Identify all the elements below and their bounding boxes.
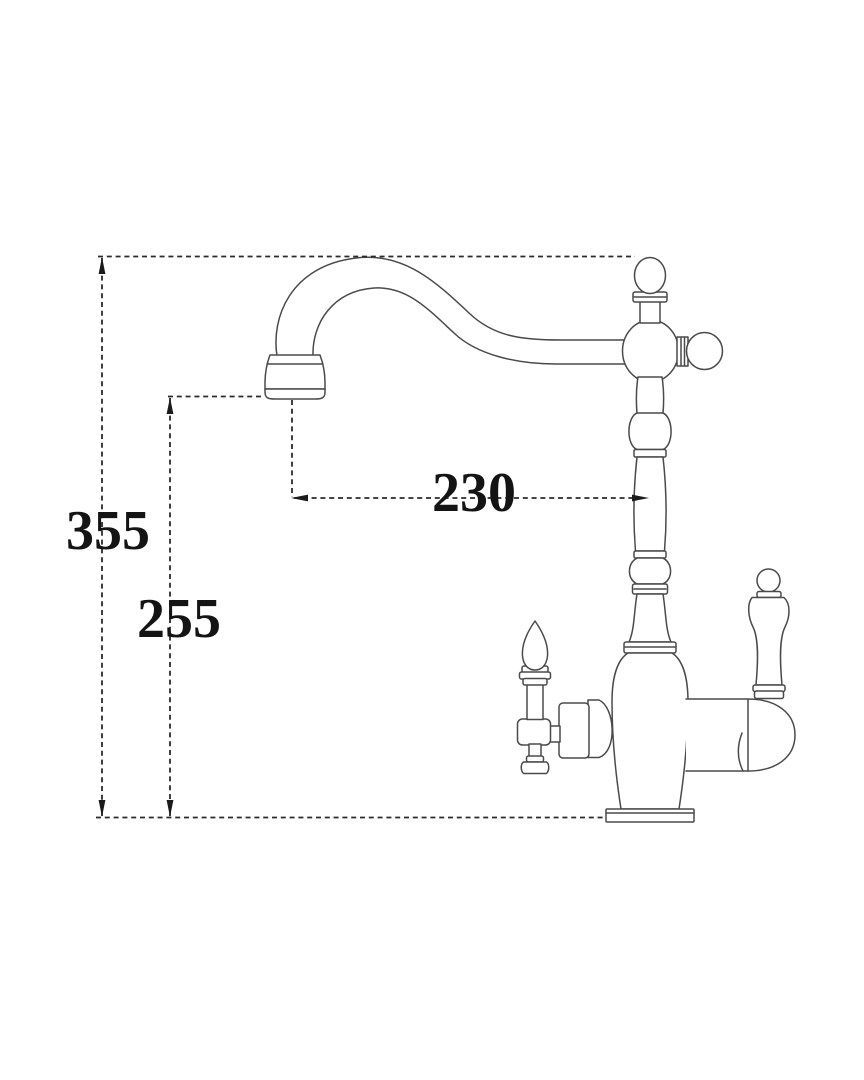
spout-outlet-cap bbox=[265, 389, 325, 399]
faucet-drawing bbox=[265, 257, 795, 822]
spout-outlet-bell bbox=[265, 355, 325, 389]
left-handle-spindle bbox=[527, 684, 543, 720]
left-handle-lower-shaft bbox=[529, 744, 541, 757]
left-handle-knob-ring bbox=[527, 756, 544, 762]
right-lever-ball-collar bbox=[757, 592, 781, 598]
column-neck-1 bbox=[636, 377, 663, 414]
column-ball-joint bbox=[623, 320, 679, 382]
dim-355-arrow-up bbox=[99, 257, 106, 274]
column-collar-2 bbox=[634, 551, 666, 558]
dim-label-355: 355 bbox=[66, 500, 150, 562]
left-handle-finial bbox=[522, 621, 547, 670]
column-torus-2 bbox=[629, 558, 670, 584]
right-lever-ball bbox=[757, 569, 780, 592]
left-handle-knob-end bbox=[521, 762, 549, 774]
faucet-dimension-diagram: 355 255 230 bbox=[0, 0, 864, 1080]
column-collar-1 bbox=[634, 450, 666, 458]
left-valve-body bbox=[559, 703, 589, 758]
right-lever-collar-b bbox=[755, 691, 784, 699]
column-shaft bbox=[634, 457, 666, 551]
right-lever-body bbox=[749, 598, 789, 686]
dim-255-arrow-down bbox=[167, 800, 174, 817]
left-valve-cap bbox=[588, 700, 612, 758]
dim-355-arrow-down bbox=[99, 800, 106, 817]
body-upper-neck bbox=[629, 594, 671, 642]
dim-255-arrow-up bbox=[167, 398, 174, 415]
left-handle-block bbox=[518, 719, 551, 745]
dim-label-255: 255 bbox=[137, 588, 221, 650]
spout-outer-curve bbox=[276, 257, 630, 356]
finial-egg bbox=[635, 258, 666, 294]
body-main bbox=[612, 653, 688, 809]
spout-inner-curve bbox=[313, 288, 630, 364]
column-torus-1 bbox=[629, 413, 671, 450]
side-knob bbox=[687, 333, 723, 370]
finial-neck bbox=[640, 301, 660, 323]
dim-label-230: 230 bbox=[432, 462, 516, 524]
left-handle-collar-c bbox=[523, 679, 547, 686]
dim-230-arrow-left bbox=[291, 495, 308, 502]
drawing-canvas: 355 255 230 bbox=[0, 0, 864, 1080]
base-flange bbox=[606, 809, 694, 822]
